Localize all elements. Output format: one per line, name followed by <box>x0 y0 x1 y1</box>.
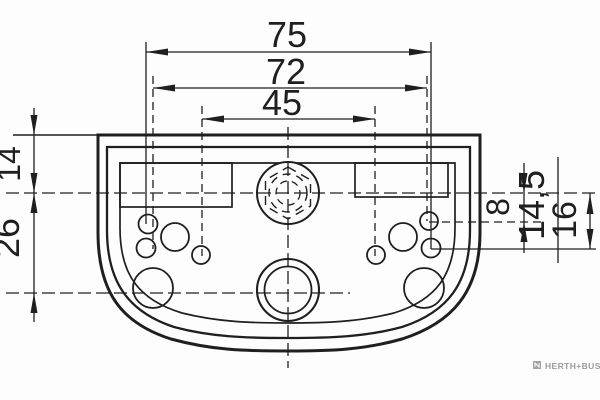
drawing-canvas: 75 72 45 14 26 8 14,5 16 <box>0 0 600 400</box>
dim-75-arrow-left <box>146 49 168 56</box>
dim-16-arrow-bottom <box>587 229 594 249</box>
dim-14-arrow-bottom <box>31 193 38 213</box>
dim-left-14-26: 14 26 <box>0 108 38 322</box>
dim-16-arrow-top <box>587 194 594 214</box>
herth-buss-logo: HERTH+BUSS <box>533 361 600 371</box>
dim-14-label: 14 <box>0 146 27 182</box>
dim-75-label: 75 <box>267 14 307 55</box>
hole-right-upper <box>420 212 438 230</box>
dim-72-arrow-right <box>405 85 427 92</box>
dim-14-arrow-top <box>31 115 38 135</box>
hole-left-inner <box>192 246 210 264</box>
technical-drawing: 75 72 45 14 26 8 14,5 16 <box>0 0 600 400</box>
dim-26-arrow-top <box>31 173 38 193</box>
reflector-right-rect <box>355 163 448 197</box>
hole-right-inner <box>367 246 385 264</box>
extension-lines <box>13 42 431 256</box>
dim-72-arrow-left <box>153 85 175 92</box>
dim-45-label: 45 <box>262 82 302 123</box>
reflector-left-rect <box>120 163 232 207</box>
hole-right-big <box>404 268 444 308</box>
dim-45-arrow-right <box>353 116 375 123</box>
dim-right-8-145-16: 8 14,5 16 <box>480 157 594 263</box>
hole-left-upper <box>139 215 158 234</box>
hole-left-mid-large <box>161 223 189 251</box>
dim-16-label: 16 <box>546 201 584 239</box>
herth-buss-logo-text: HERTH+BUSS <box>545 361 600 371</box>
dim-26-label: 26 <box>0 218 27 258</box>
dim-75: 75 <box>146 14 431 56</box>
dim-75-arrow-right <box>409 49 431 56</box>
hole-right-mid-large <box>389 223 417 251</box>
dim-45-arrow-left <box>202 116 224 123</box>
dim-26-arrow-bottom <box>31 293 38 313</box>
